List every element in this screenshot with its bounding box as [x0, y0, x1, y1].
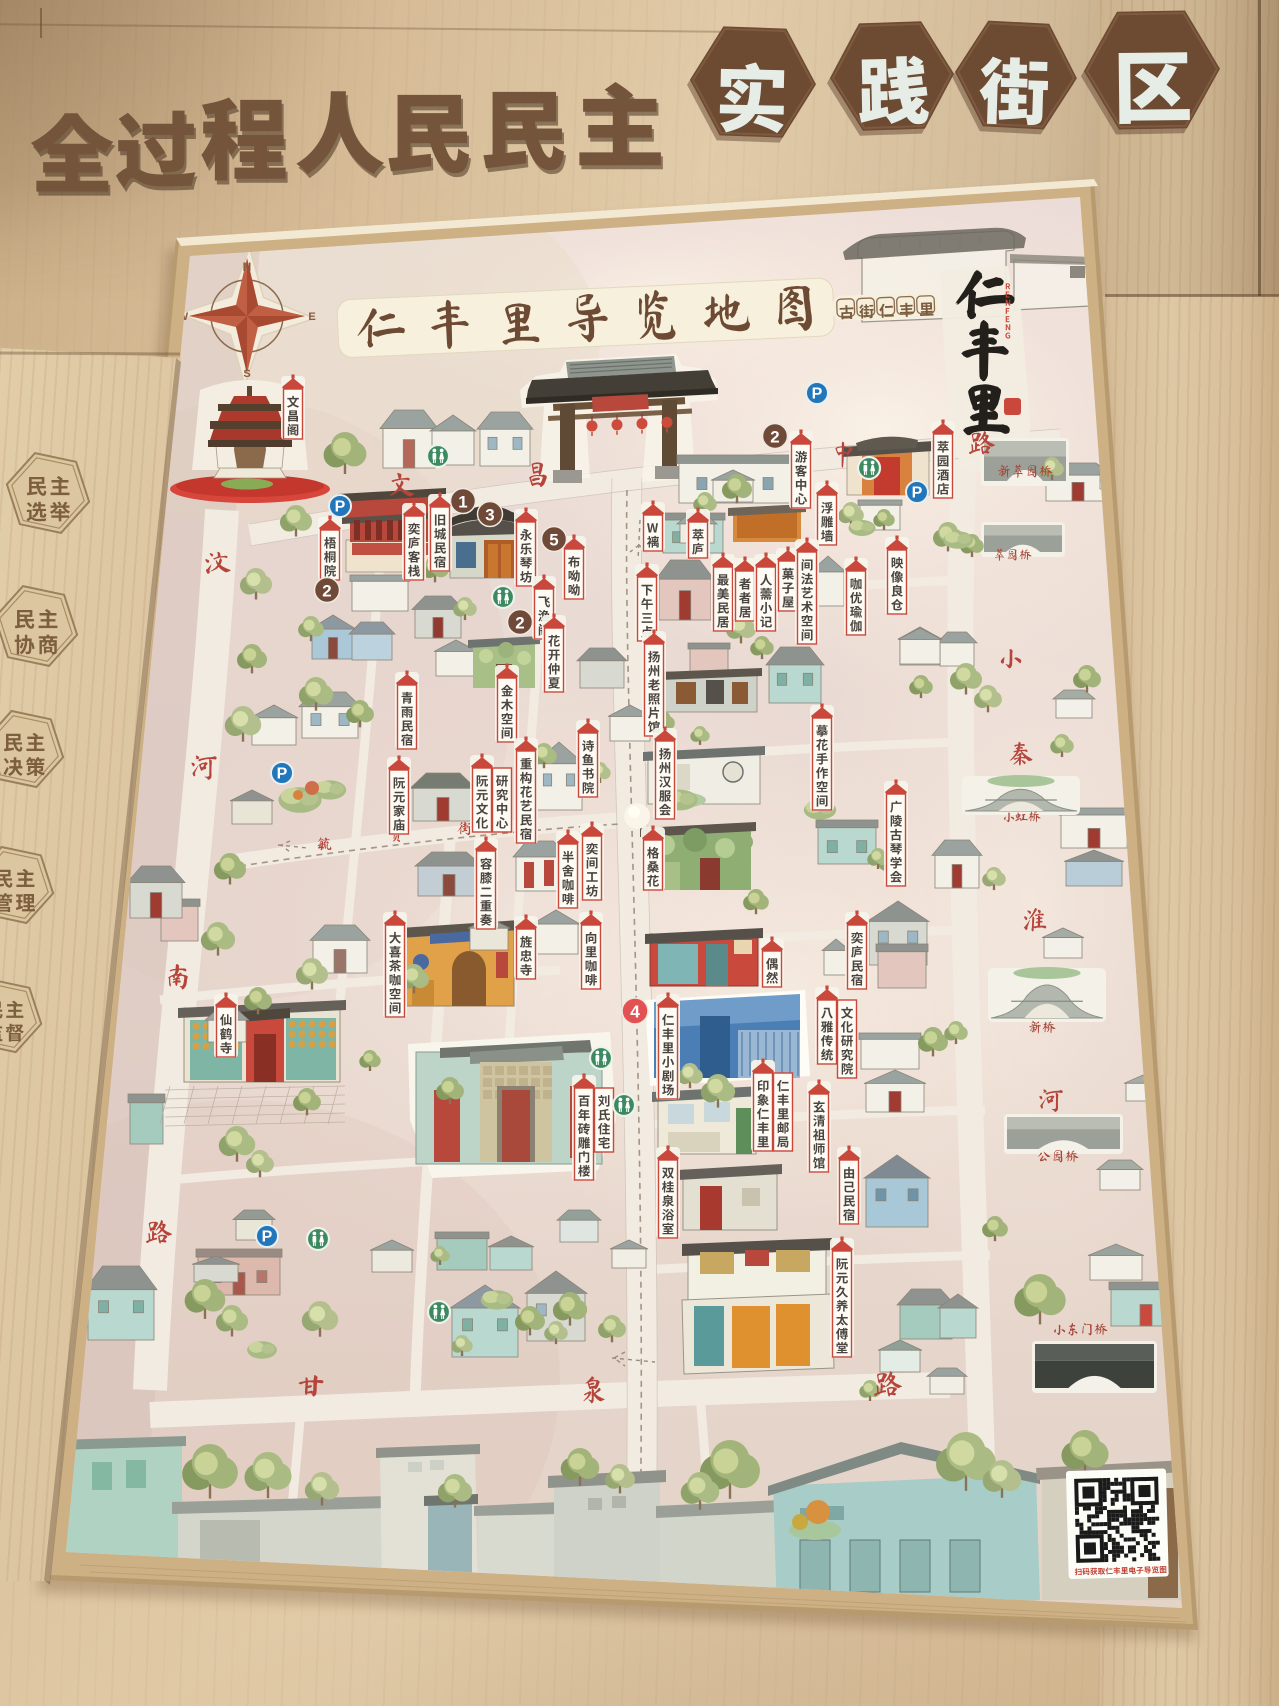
svg-text:1: 1 — [458, 492, 467, 511]
svg-text:P: P — [335, 499, 346, 516]
svg-text:4: 4 — [630, 1002, 640, 1022]
svg-text:3: 3 — [485, 505, 494, 524]
svg-text:2: 2 — [770, 427, 779, 446]
svg-text:E: E — [308, 311, 315, 323]
svg-text:P: P — [277, 766, 288, 783]
svg-text:P: P — [912, 485, 923, 502]
svg-text:S: S — [243, 368, 250, 380]
svg-text:N: N — [243, 260, 252, 274]
svg-text:P: P — [262, 1229, 273, 1246]
svg-text:2: 2 — [515, 613, 524, 632]
svg-text:2: 2 — [322, 581, 331, 600]
svg-text:P: P — [812, 386, 823, 403]
svg-text:5: 5 — [549, 530, 558, 549]
